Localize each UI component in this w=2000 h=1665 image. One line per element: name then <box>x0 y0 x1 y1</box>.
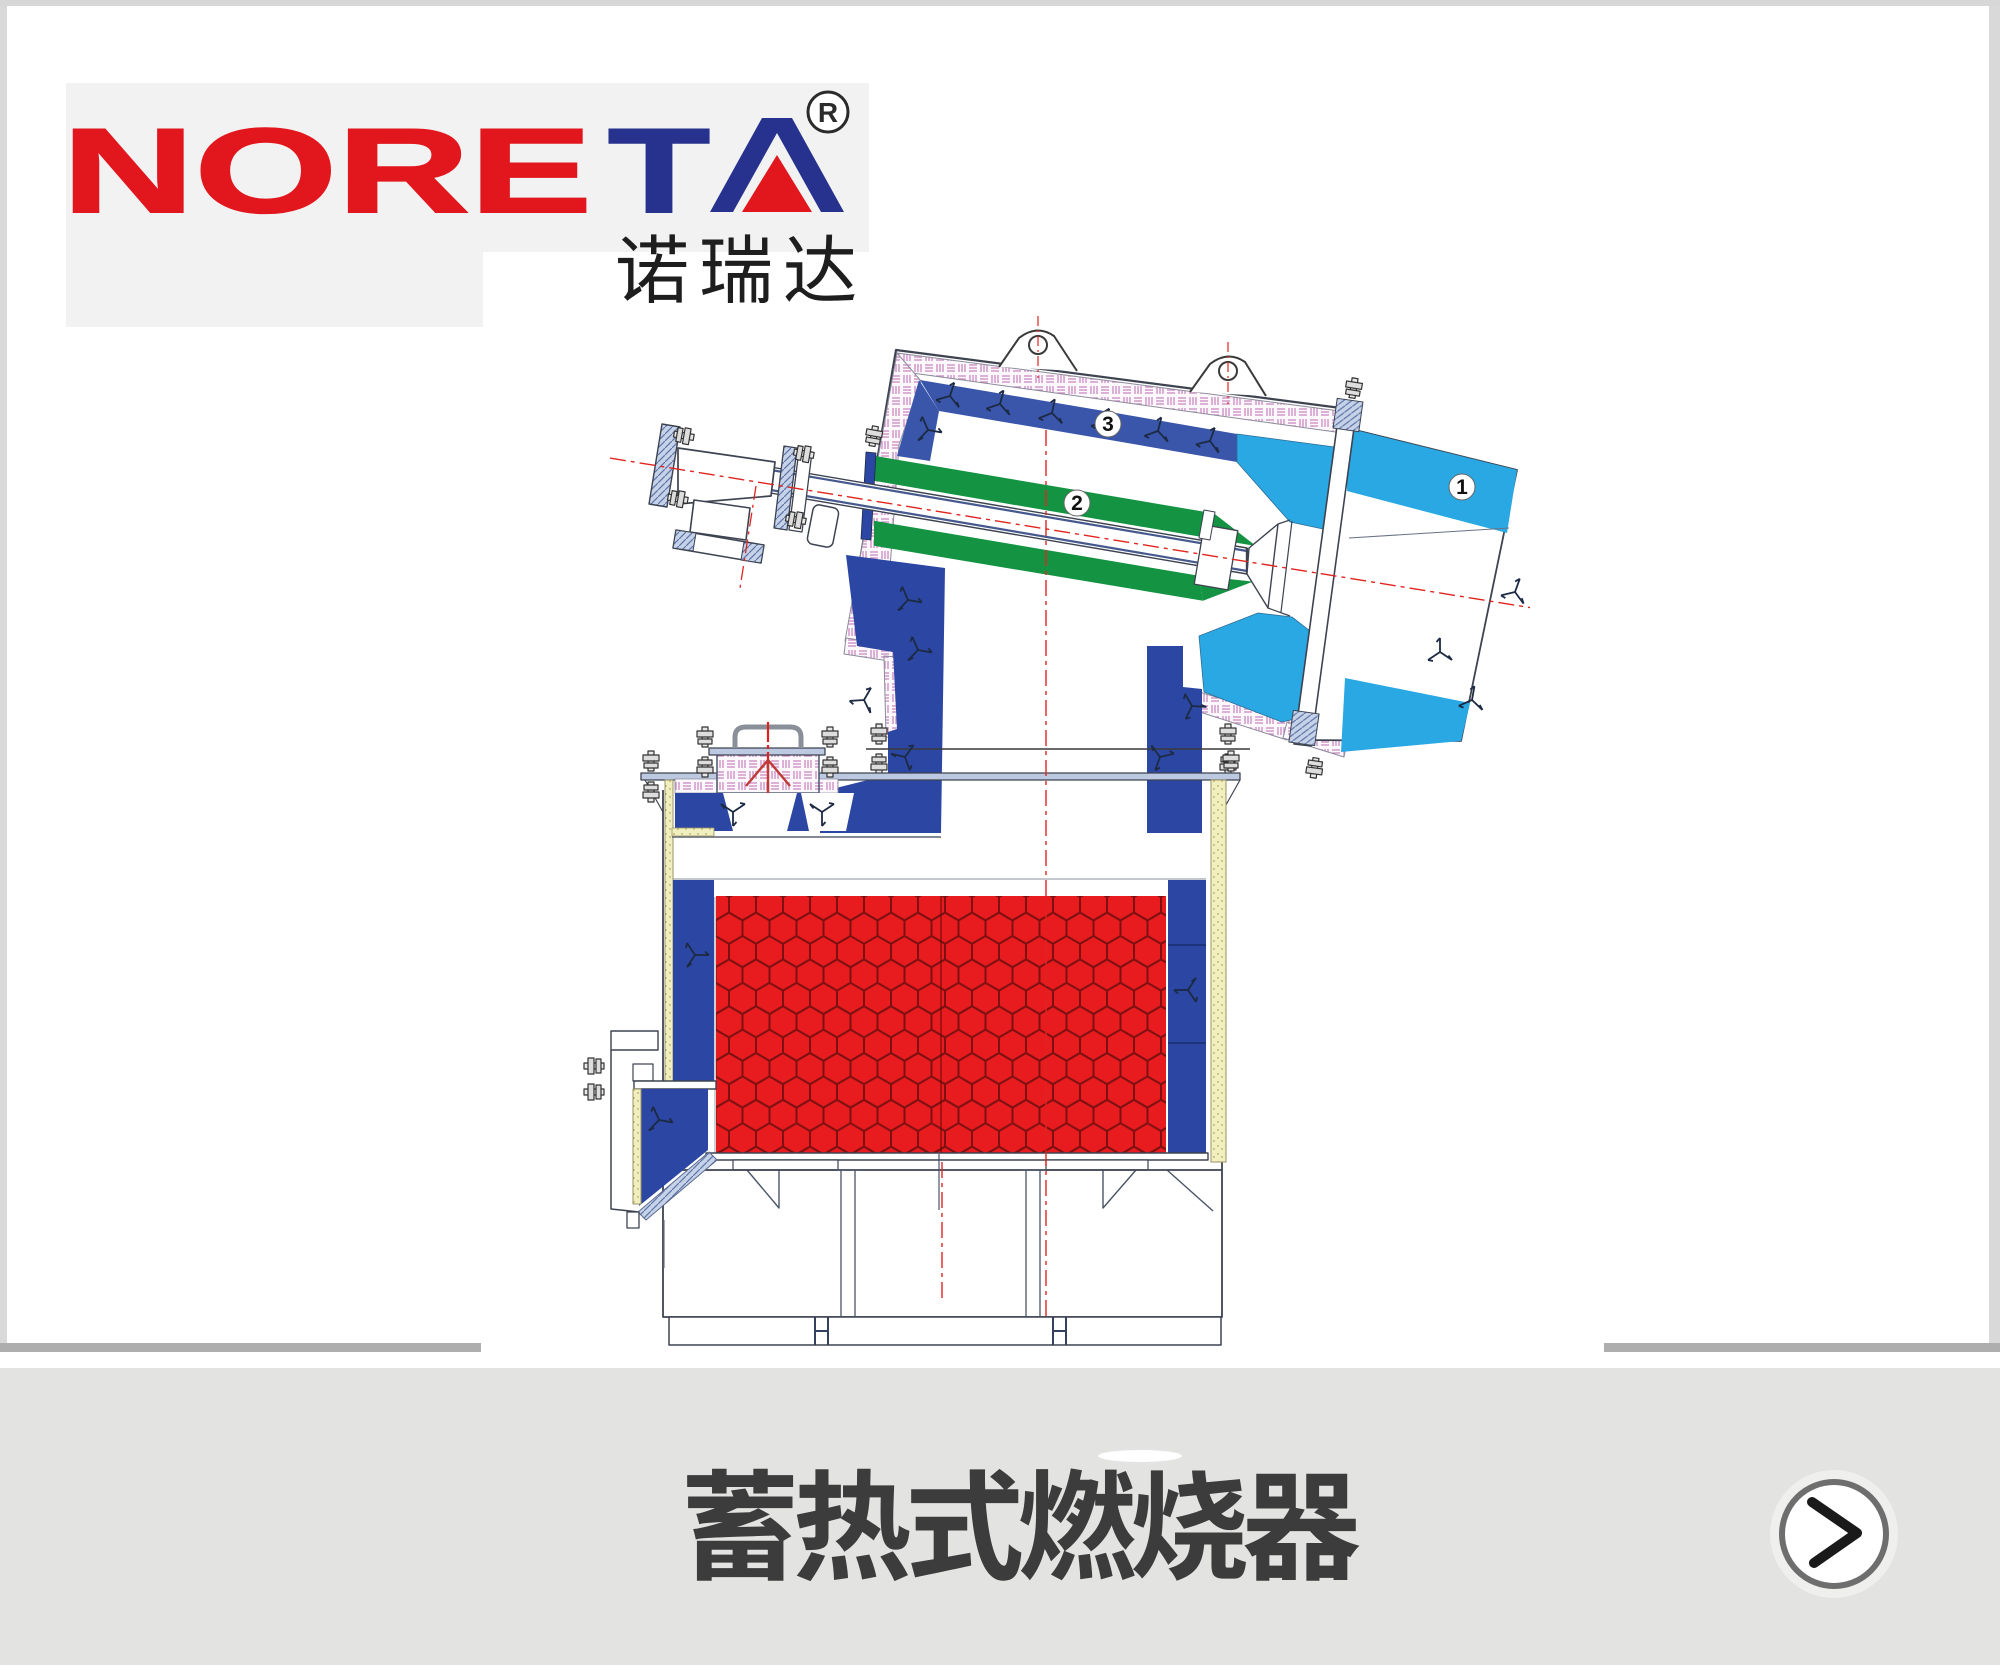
svg-text:2: 2 <box>1071 492 1083 515</box>
svg-text:NORE: NORE <box>62 104 592 238</box>
svg-text:1: 1 <box>1456 476 1468 499</box>
svg-text:3: 3 <box>1102 413 1114 436</box>
svg-text:T: T <box>608 104 710 238</box>
svg-text:R: R <box>818 97 838 128</box>
